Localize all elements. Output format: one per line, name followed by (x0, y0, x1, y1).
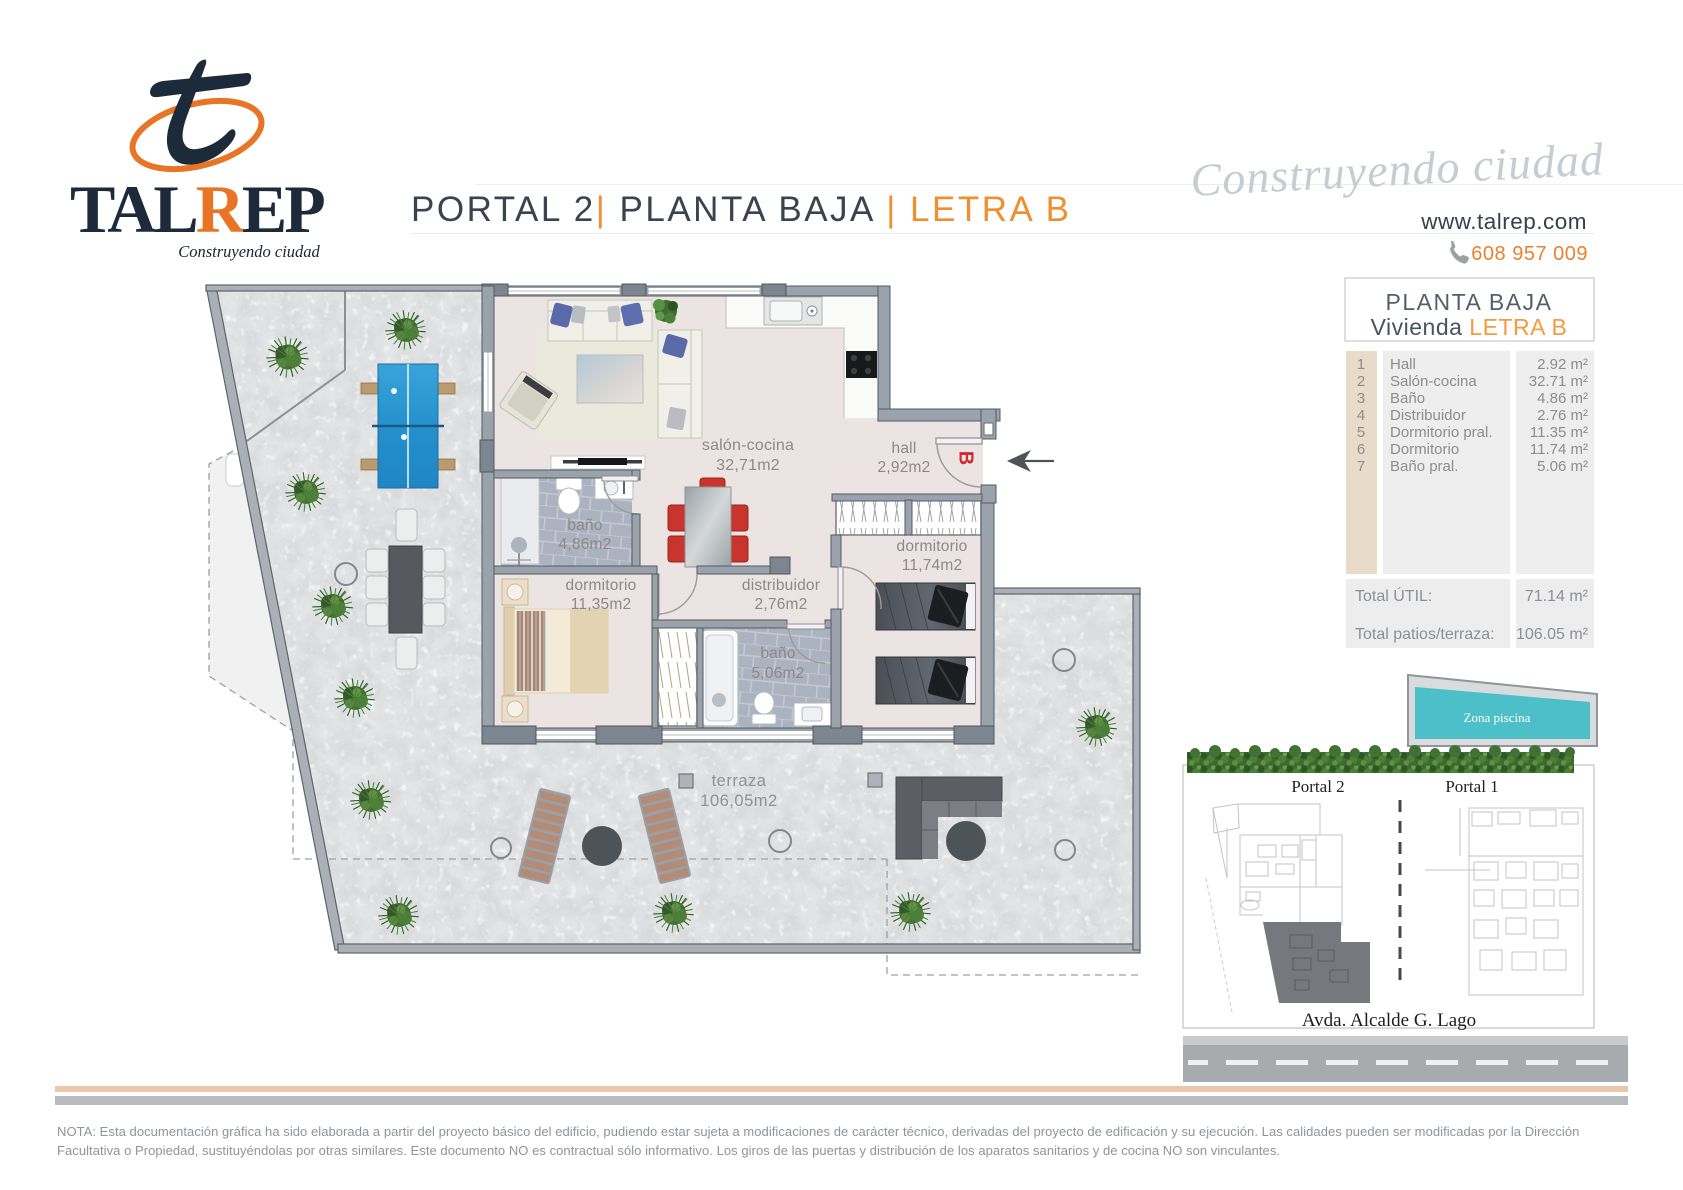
svg-text:PLANTA BAJA: PLANTA BAJA (1386, 289, 1553, 315)
svg-text:106,05m2: 106,05m2 (700, 792, 777, 810)
svg-text:Distribuidor: Distribuidor (1390, 407, 1466, 424)
svg-text:11.35 m²: 11.35 m² (1530, 424, 1588, 441)
svg-text:4,86m2: 4,86m2 (559, 536, 612, 553)
svg-text:71.14 m²: 71.14 m² (1525, 588, 1589, 605)
svg-text:terraza: terraza (712, 772, 767, 790)
svg-text:PORTAL 2| PLANTA BAJA | LETRA: PORTAL 2| PLANTA BAJA | LETRA B (411, 190, 1071, 229)
svg-text:106.05 m²: 106.05 m² (1516, 626, 1589, 643)
svg-text:5,06m2: 5,06m2 (752, 665, 805, 682)
svg-text:1: 1 (1357, 356, 1365, 373)
svg-text:NOTA: Esta documentación gráfi: NOTA: Esta documentación gráfica ha sido… (57, 1124, 1579, 1139)
svg-text:Total patios/terraza:: Total patios/terraza: (1355, 626, 1495, 643)
svg-text:4.86 m²: 4.86 m² (1537, 390, 1588, 407)
svg-text:dormitorio: dormitorio (566, 577, 637, 594)
svg-text:distribuidor: distribuidor (742, 577, 820, 594)
svg-text:Dormitorio pral.: Dormitorio pral. (1390, 424, 1493, 441)
svg-text:32.71 m²: 32.71 m² (1529, 373, 1588, 390)
svg-text:11,74m2: 11,74m2 (902, 557, 963, 574)
svg-text:Portal 1: Portal 1 (1445, 777, 1498, 796)
svg-text:Dormitorio: Dormitorio (1390, 441, 1459, 458)
svg-text:hall: hall (892, 440, 917, 457)
svg-text:www.talrep.com: www.talrep.com (1420, 209, 1587, 234)
svg-text:3: 3 (1357, 390, 1365, 407)
svg-text:Zona piscina: Zona piscina (1464, 710, 1531, 725)
svg-text:2.92 m²: 2.92 m² (1537, 356, 1588, 373)
svg-text:Hall: Hall (1390, 356, 1416, 373)
svg-text:Portal 2: Portal 2 (1291, 777, 1344, 796)
svg-text:baño: baño (760, 645, 795, 662)
svg-text:Baño pral.: Baño pral. (1390, 458, 1458, 475)
svg-text:2,92m2: 2,92m2 (878, 459, 931, 476)
svg-text:TALREP: TALREP (70, 171, 324, 247)
svg-text:Baño: Baño (1390, 390, 1425, 407)
svg-text:32,71m2: 32,71m2 (716, 457, 780, 474)
svg-text:6: 6 (1357, 441, 1365, 458)
svg-text:11.74 m²: 11.74 m² (1530, 441, 1588, 458)
svg-text:2: 2 (1357, 373, 1365, 390)
svg-text:B: B (955, 451, 977, 465)
svg-text:Vivienda LETRA B: Vivienda LETRA B (1371, 314, 1568, 340)
svg-text:baño: baño (567, 517, 602, 534)
svg-text:4: 4 (1357, 407, 1365, 424)
svg-text:2.76 m²: 2.76 m² (1537, 407, 1588, 424)
svg-text:Avda. Alcalde G. Lago: Avda. Alcalde G. Lago (1302, 1010, 1476, 1031)
svg-text:608 957 009: 608 957 009 (1471, 243, 1588, 265)
svg-text:5: 5 (1357, 424, 1365, 441)
svg-text:5.06 m²: 5.06 m² (1537, 458, 1588, 475)
svg-text:7: 7 (1357, 458, 1365, 475)
svg-text:Facultativa o Propiedad, susti: Facultativa o Propiedad, sustituyéndolas… (57, 1143, 1280, 1158)
svg-text:Salón-cocina: Salón-cocina (1390, 373, 1477, 390)
svg-text:Construyendo ciudad: Construyendo ciudad (178, 242, 320, 261)
svg-text:11,35m2: 11,35m2 (571, 596, 632, 613)
svg-text:salón-cocina: salón-cocina (702, 437, 794, 454)
svg-text:Total ÚTIL:: Total ÚTIL: (1355, 586, 1432, 605)
svg-text:2,76m2: 2,76m2 (755, 596, 808, 613)
svg-text:dormitorio: dormitorio (897, 538, 968, 555)
